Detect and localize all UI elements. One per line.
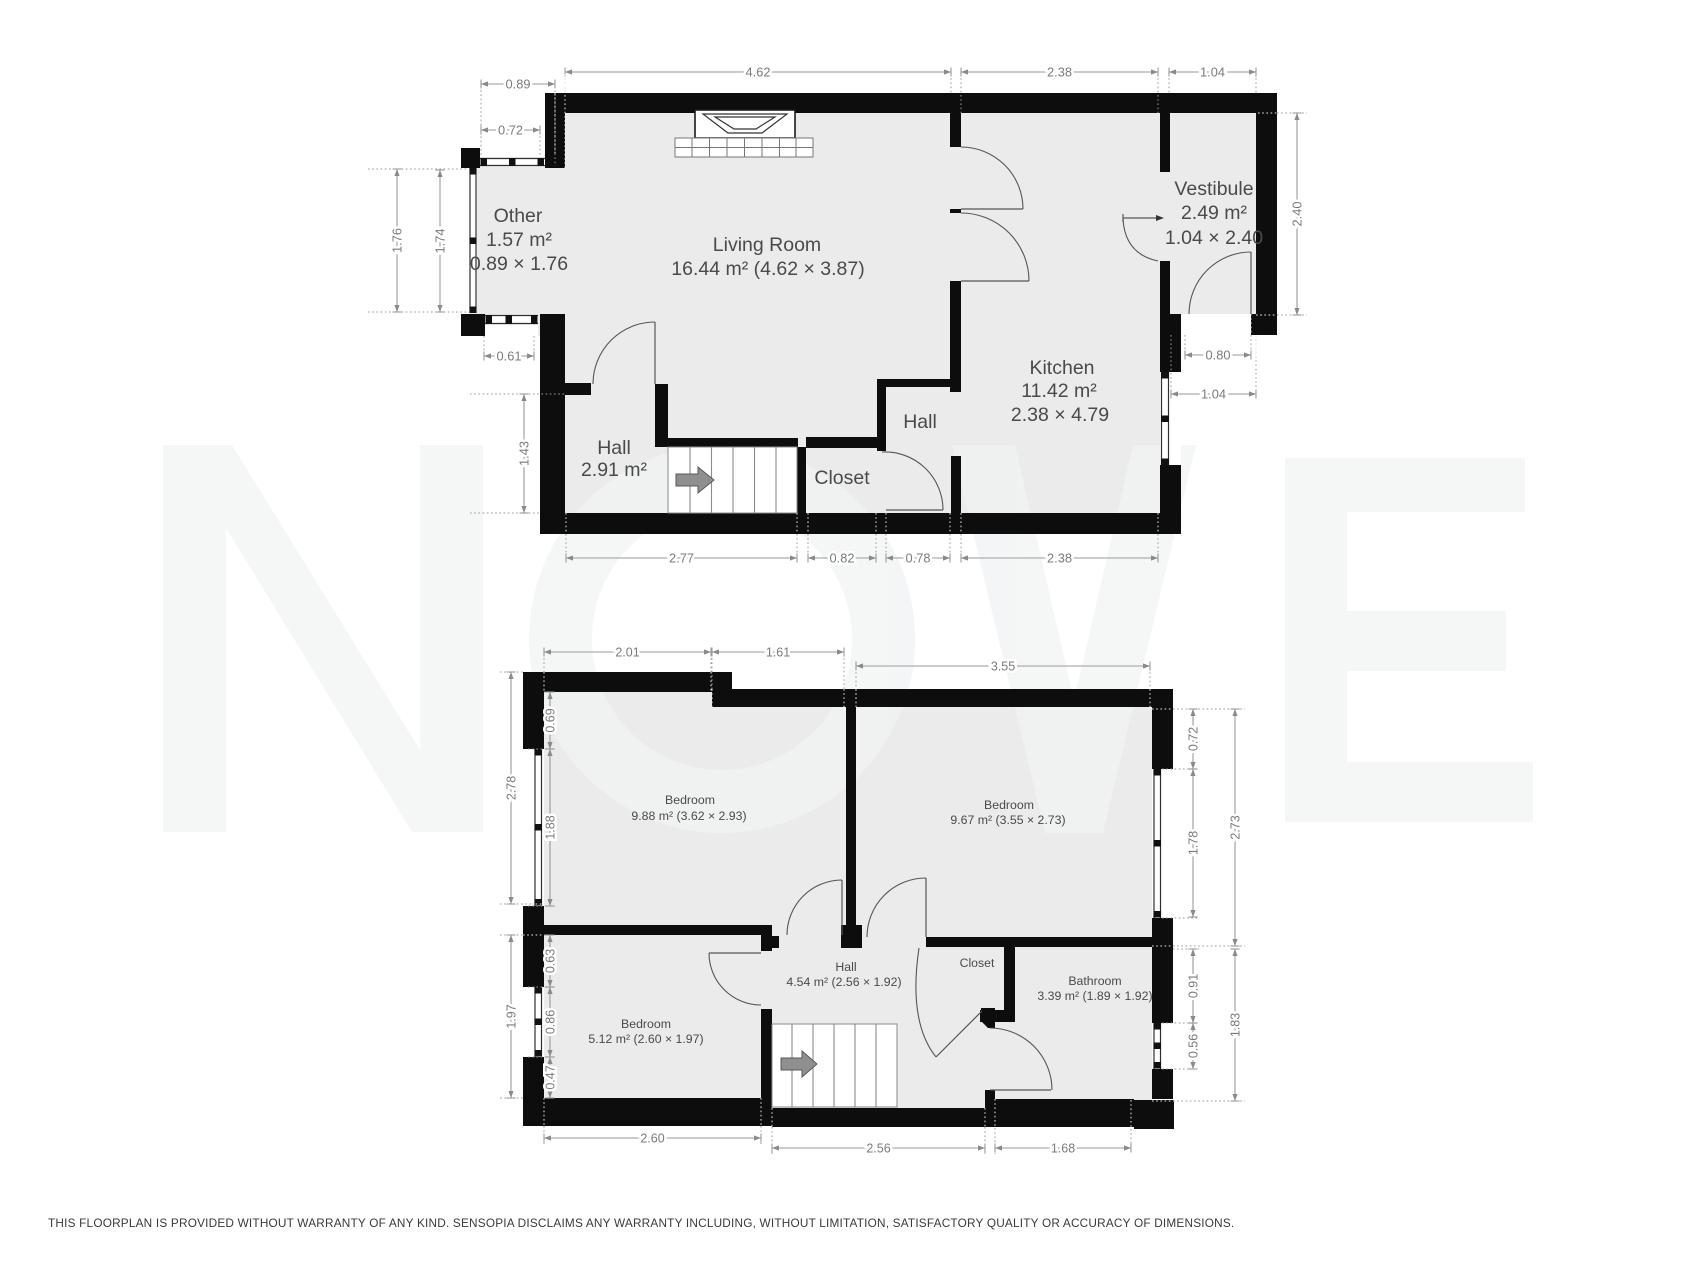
svg-text:0.47: 0.47 bbox=[543, 1065, 557, 1089]
svg-text:2.77: 2.77 bbox=[669, 550, 694, 565]
svg-text:0.69: 0.69 bbox=[543, 708, 557, 732]
svg-text:0.86: 0.86 bbox=[543, 1010, 557, 1034]
svg-text:Bedroom: Bedroom bbox=[984, 798, 1034, 812]
svg-text:4.54 m² (2.56 × 1.92): 4.54 m² (2.56 × 1.92) bbox=[786, 975, 901, 989]
svg-text:2.73: 2.73 bbox=[1228, 815, 1242, 839]
svg-text:1.57 m²: 1.57 m² bbox=[486, 229, 553, 251]
svg-text:3.39 m² (1.89 × 1.92): 3.39 m² (1.89 × 1.92) bbox=[1037, 989, 1152, 1003]
svg-text:2.38: 2.38 bbox=[1047, 550, 1072, 565]
svg-text:0.82: 0.82 bbox=[830, 550, 855, 565]
svg-text:0.61: 0.61 bbox=[497, 348, 522, 363]
svg-text:Vestibule: Vestibule bbox=[1174, 178, 1253, 200]
svg-text:2.60: 2.60 bbox=[640, 1131, 664, 1145]
svg-text:Hall: Hall bbox=[835, 960, 856, 974]
svg-text:Hall: Hall bbox=[597, 437, 631, 459]
svg-text:1.04: 1.04 bbox=[1201, 386, 1226, 401]
svg-text:2.01: 2.01 bbox=[615, 645, 639, 659]
svg-text:5.12 m² (2.60 × 1.97): 5.12 m² (2.60 × 1.97) bbox=[588, 1032, 703, 1046]
svg-text:1.88: 1.88 bbox=[543, 815, 557, 839]
svg-text:1.43: 1.43 bbox=[516, 441, 531, 466]
svg-text:11.42 m²: 11.42 m² bbox=[1021, 380, 1097, 402]
svg-text:Living Room: Living Room bbox=[713, 234, 821, 256]
svg-text:1.76: 1.76 bbox=[389, 228, 404, 253]
svg-text:Bathroom: Bathroom bbox=[1068, 974, 1121, 988]
svg-text:2.91 m²: 2.91 m² bbox=[581, 459, 648, 481]
svg-text:0.89: 0.89 bbox=[506, 76, 531, 91]
svg-text:0.56: 0.56 bbox=[1186, 1034, 1200, 1058]
svg-text:1.83: 1.83 bbox=[1228, 1013, 1242, 1037]
svg-text:1.68: 1.68 bbox=[1051, 1141, 1075, 1155]
svg-text:Closet: Closet bbox=[960, 956, 995, 970]
svg-text:0.63: 0.63 bbox=[543, 949, 557, 973]
svg-text:9.88 m² (3.62 × 2.93): 9.88 m² (3.62 × 2.93) bbox=[631, 809, 746, 823]
svg-text:0.72: 0.72 bbox=[498, 122, 523, 137]
svg-text:3.55: 3.55 bbox=[991, 659, 1015, 673]
svg-text:2.38: 2.38 bbox=[1047, 64, 1072, 79]
svg-text:1.04 × 2.40: 1.04 × 2.40 bbox=[1165, 227, 1263, 249]
svg-text:Other: Other bbox=[494, 205, 543, 227]
svg-text:2.56: 2.56 bbox=[866, 1141, 890, 1155]
svg-text:Hall: Hall bbox=[903, 411, 937, 433]
svg-text:0.78: 0.78 bbox=[906, 550, 931, 565]
svg-text:4.62: 4.62 bbox=[746, 64, 771, 79]
svg-text:9.67 m² (3.55 × 2.73): 9.67 m² (3.55 × 2.73) bbox=[950, 813, 1065, 827]
svg-text:2.38 × 4.79: 2.38 × 4.79 bbox=[1011, 404, 1109, 426]
svg-text:2.49 m²: 2.49 m² bbox=[1181, 202, 1248, 224]
svg-text:2.40: 2.40 bbox=[1289, 202, 1304, 227]
svg-text:1.97: 1.97 bbox=[504, 1004, 518, 1028]
svg-text:1.74: 1.74 bbox=[432, 229, 447, 254]
svg-text:Closet: Closet bbox=[814, 467, 870, 489]
svg-text:0.72: 0.72 bbox=[1186, 727, 1200, 751]
svg-text:0.80: 0.80 bbox=[1206, 347, 1231, 362]
svg-text:0.89 × 1.76: 0.89 × 1.76 bbox=[470, 253, 568, 275]
svg-text:1.61: 1.61 bbox=[766, 645, 790, 659]
svg-text:2.78: 2.78 bbox=[504, 776, 518, 800]
svg-text:1.04: 1.04 bbox=[1200, 64, 1225, 79]
svg-text:Kitchen: Kitchen bbox=[1029, 357, 1094, 379]
svg-text:Bedroom: Bedroom bbox=[621, 1017, 671, 1031]
svg-text:Bedroom: Bedroom bbox=[665, 793, 715, 807]
svg-text:1.78: 1.78 bbox=[1186, 831, 1200, 855]
svg-text:THIS FLOORPLAN IS PROVIDED WIT: THIS FLOORPLAN IS PROVIDED WITHOUT WARRA… bbox=[48, 1216, 1234, 1230]
svg-text:0.91: 0.91 bbox=[1186, 974, 1200, 998]
svg-text:16.44 m² (4.62 × 3.87): 16.44 m² (4.62 × 3.87) bbox=[671, 258, 865, 280]
